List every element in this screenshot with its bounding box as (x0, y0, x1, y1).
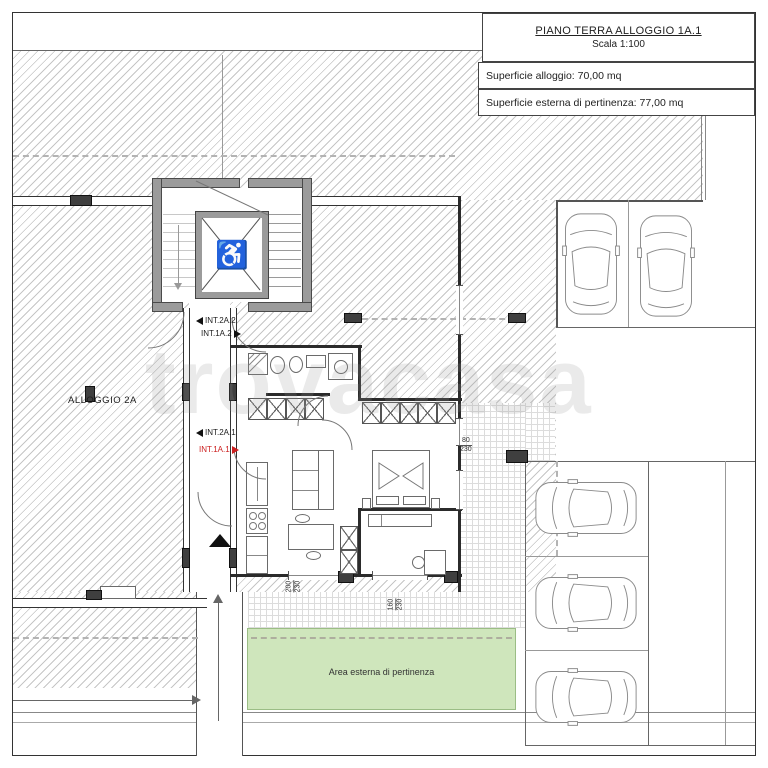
pillar (182, 548, 190, 568)
driveway-lane-line (725, 461, 726, 745)
green-area: Area esterna di pertinenza (247, 628, 516, 710)
title-block-row-external: Superficie esterna di pertinenza: 77,00 … (478, 89, 755, 116)
label-int-1a-1-text: INT.1A.1 (199, 446, 230, 454)
nightstand (431, 498, 440, 509)
walkway-arrow-line (218, 603, 219, 721)
stair-direction-line (178, 225, 179, 283)
external-area-text: Superficie esterna di pertinenza: 77,00 … (486, 97, 683, 109)
pillar (344, 313, 362, 323)
window (288, 571, 344, 580)
parking-left-edge (556, 200, 558, 327)
title-block: PIANO TERRA ALLOGGIO 1A.1 Scala 1:100 (482, 13, 755, 62)
bidet (289, 356, 303, 373)
wall-step-vertical (358, 345, 361, 400)
door-triangle-left-icon (196, 429, 203, 437)
shower (248, 353, 268, 375)
door-arc (322, 420, 352, 450)
road-line-2-left (13, 722, 196, 723)
window (456, 470, 463, 510)
double-line-b (705, 115, 706, 200)
pillow (403, 496, 426, 505)
label-int-1a-2: INT.1A.2 (201, 330, 241, 338)
boundary-dashed-mid (362, 318, 515, 320)
stair-break-line (196, 178, 268, 218)
label-int-1a-1: INT.1A.1 (199, 446, 239, 454)
parking2-left-edge (525, 461, 526, 745)
plan-title: PIANO TERRA ALLOGGIO 1A.1 (535, 25, 701, 37)
desk (424, 550, 446, 575)
road-line-2-right (243, 722, 755, 723)
desk-chair (412, 556, 425, 569)
paved-strip-south (248, 592, 460, 628)
car-icon (534, 668, 638, 726)
stair-wall-bottom-left (152, 302, 183, 312)
wall-step-box (100, 586, 136, 599)
dimension-window-bottom-1: 200 230 (285, 581, 302, 593)
green-area-dashed-boundary (251, 637, 512, 639)
car-icon (534, 479, 638, 537)
stove-burners (247, 509, 267, 533)
pillar (229, 548, 237, 568)
door-arc (234, 447, 266, 479)
pillar (508, 313, 526, 323)
pillar (444, 571, 458, 583)
parking-top-edge (556, 200, 703, 202)
dimension-window-bottom-2: 160 230 (387, 599, 404, 611)
stair-wall-bottom-right (248, 302, 312, 312)
car-icon (562, 212, 620, 316)
elevator: ♿ (196, 212, 268, 298)
bedroom-partition-wall (358, 508, 462, 511)
car-icon (637, 214, 695, 318)
parking2-divider-1 (525, 556, 648, 557)
chair (295, 514, 310, 523)
apartment-area-text: Superficie alloggio: 70,00 mq (486, 70, 621, 82)
door-arc (148, 312, 184, 348)
window (372, 571, 428, 580)
stove (246, 508, 268, 534)
parking-bottom-edge (556, 327, 755, 328)
stair-arrow-down-icon (174, 283, 182, 290)
wall-bottom-left (13, 598, 207, 608)
label-int-2a-2: INT.2A.2 (196, 317, 236, 325)
label-int-2a-1: INT.2A.1 (196, 429, 236, 437)
parking2-top-edge (525, 461, 755, 462)
entrance-marker-icon (209, 534, 231, 547)
double-line-a (701, 115, 702, 200)
chair (306, 551, 321, 560)
pillar (70, 195, 92, 206)
washing-machine-drum (334, 360, 348, 374)
parking2-bottom-edge (525, 745, 755, 746)
label-alloggio-2a: ALLOGGIO 2A (68, 395, 137, 406)
site-line-vertical (222, 55, 223, 178)
window (456, 285, 463, 335)
label-int-1a-2-text: INT.1A.2 (201, 330, 232, 338)
dimension-window-right: 80 230 (460, 437, 472, 454)
driveway-arrow-right-icon (192, 695, 201, 705)
toilet (270, 356, 285, 374)
shower-lines (249, 354, 267, 374)
door-triangle-right-icon (234, 330, 241, 338)
wardrobe (362, 402, 456, 424)
bed-blanket-fold (373, 457, 429, 495)
pillar (506, 450, 528, 463)
sofa-back (318, 450, 334, 510)
kitchen-sink-cabinet (246, 536, 268, 574)
road-line-1-left (13, 712, 196, 713)
sink (306, 355, 326, 368)
stair-wall-left (152, 178, 162, 312)
pillar (229, 383, 237, 401)
stair-wall-right (302, 178, 312, 312)
boundary-dashed-bottom (13, 637, 198, 639)
title-block-row-area: Superficie alloggio: 70,00 mq (478, 62, 755, 89)
pillow (376, 496, 399, 505)
wall-right (458, 196, 461, 592)
dining-table (288, 524, 334, 550)
wardrobe (340, 526, 358, 574)
wheelchair-icon: ♿ (215, 239, 249, 271)
label-int-2a-2-text: INT.2A.2 (205, 317, 236, 325)
wall-right-of-stairs (312, 196, 460, 206)
label-int-2a-1-text: INT.2A.1 (205, 429, 236, 437)
boundary-dashed-top (13, 155, 455, 157)
plan-scale: Scala 1:100 (592, 39, 645, 50)
site-line-top (13, 50, 482, 51)
bench-bed (368, 514, 432, 527)
pillar (86, 590, 102, 600)
driveway-arrow-line (13, 700, 193, 701)
walkway-arrow-up-icon (213, 594, 223, 603)
bedroom-wall-top (358, 398, 462, 401)
road-line-1-right (243, 712, 755, 713)
door-triangle-right-red-icon (232, 446, 239, 454)
door-arc (198, 492, 232, 526)
green-area-label: Area esterna di pertinenza (248, 667, 515, 677)
floor-plan-page: { "title_block": { "title": "PIANO TERRA… (0, 0, 768, 768)
entrance-walkway (196, 592, 243, 756)
parking-divider (628, 200, 629, 327)
car-icon (534, 574, 638, 632)
double-bed (372, 450, 430, 508)
stair-treads-right (268, 214, 301, 292)
parking2-right-edge (648, 461, 649, 745)
nightstand (362, 498, 371, 509)
stair-treads-left (163, 214, 196, 292)
washing-machine (328, 353, 353, 380)
sofa-seat (292, 450, 319, 510)
living-partition-wall (358, 508, 361, 574)
door-triangle-left-icon (196, 317, 203, 325)
parking2-divider-2 (525, 650, 648, 651)
paved-courtyard-strip (525, 403, 555, 461)
pillar (182, 383, 190, 401)
